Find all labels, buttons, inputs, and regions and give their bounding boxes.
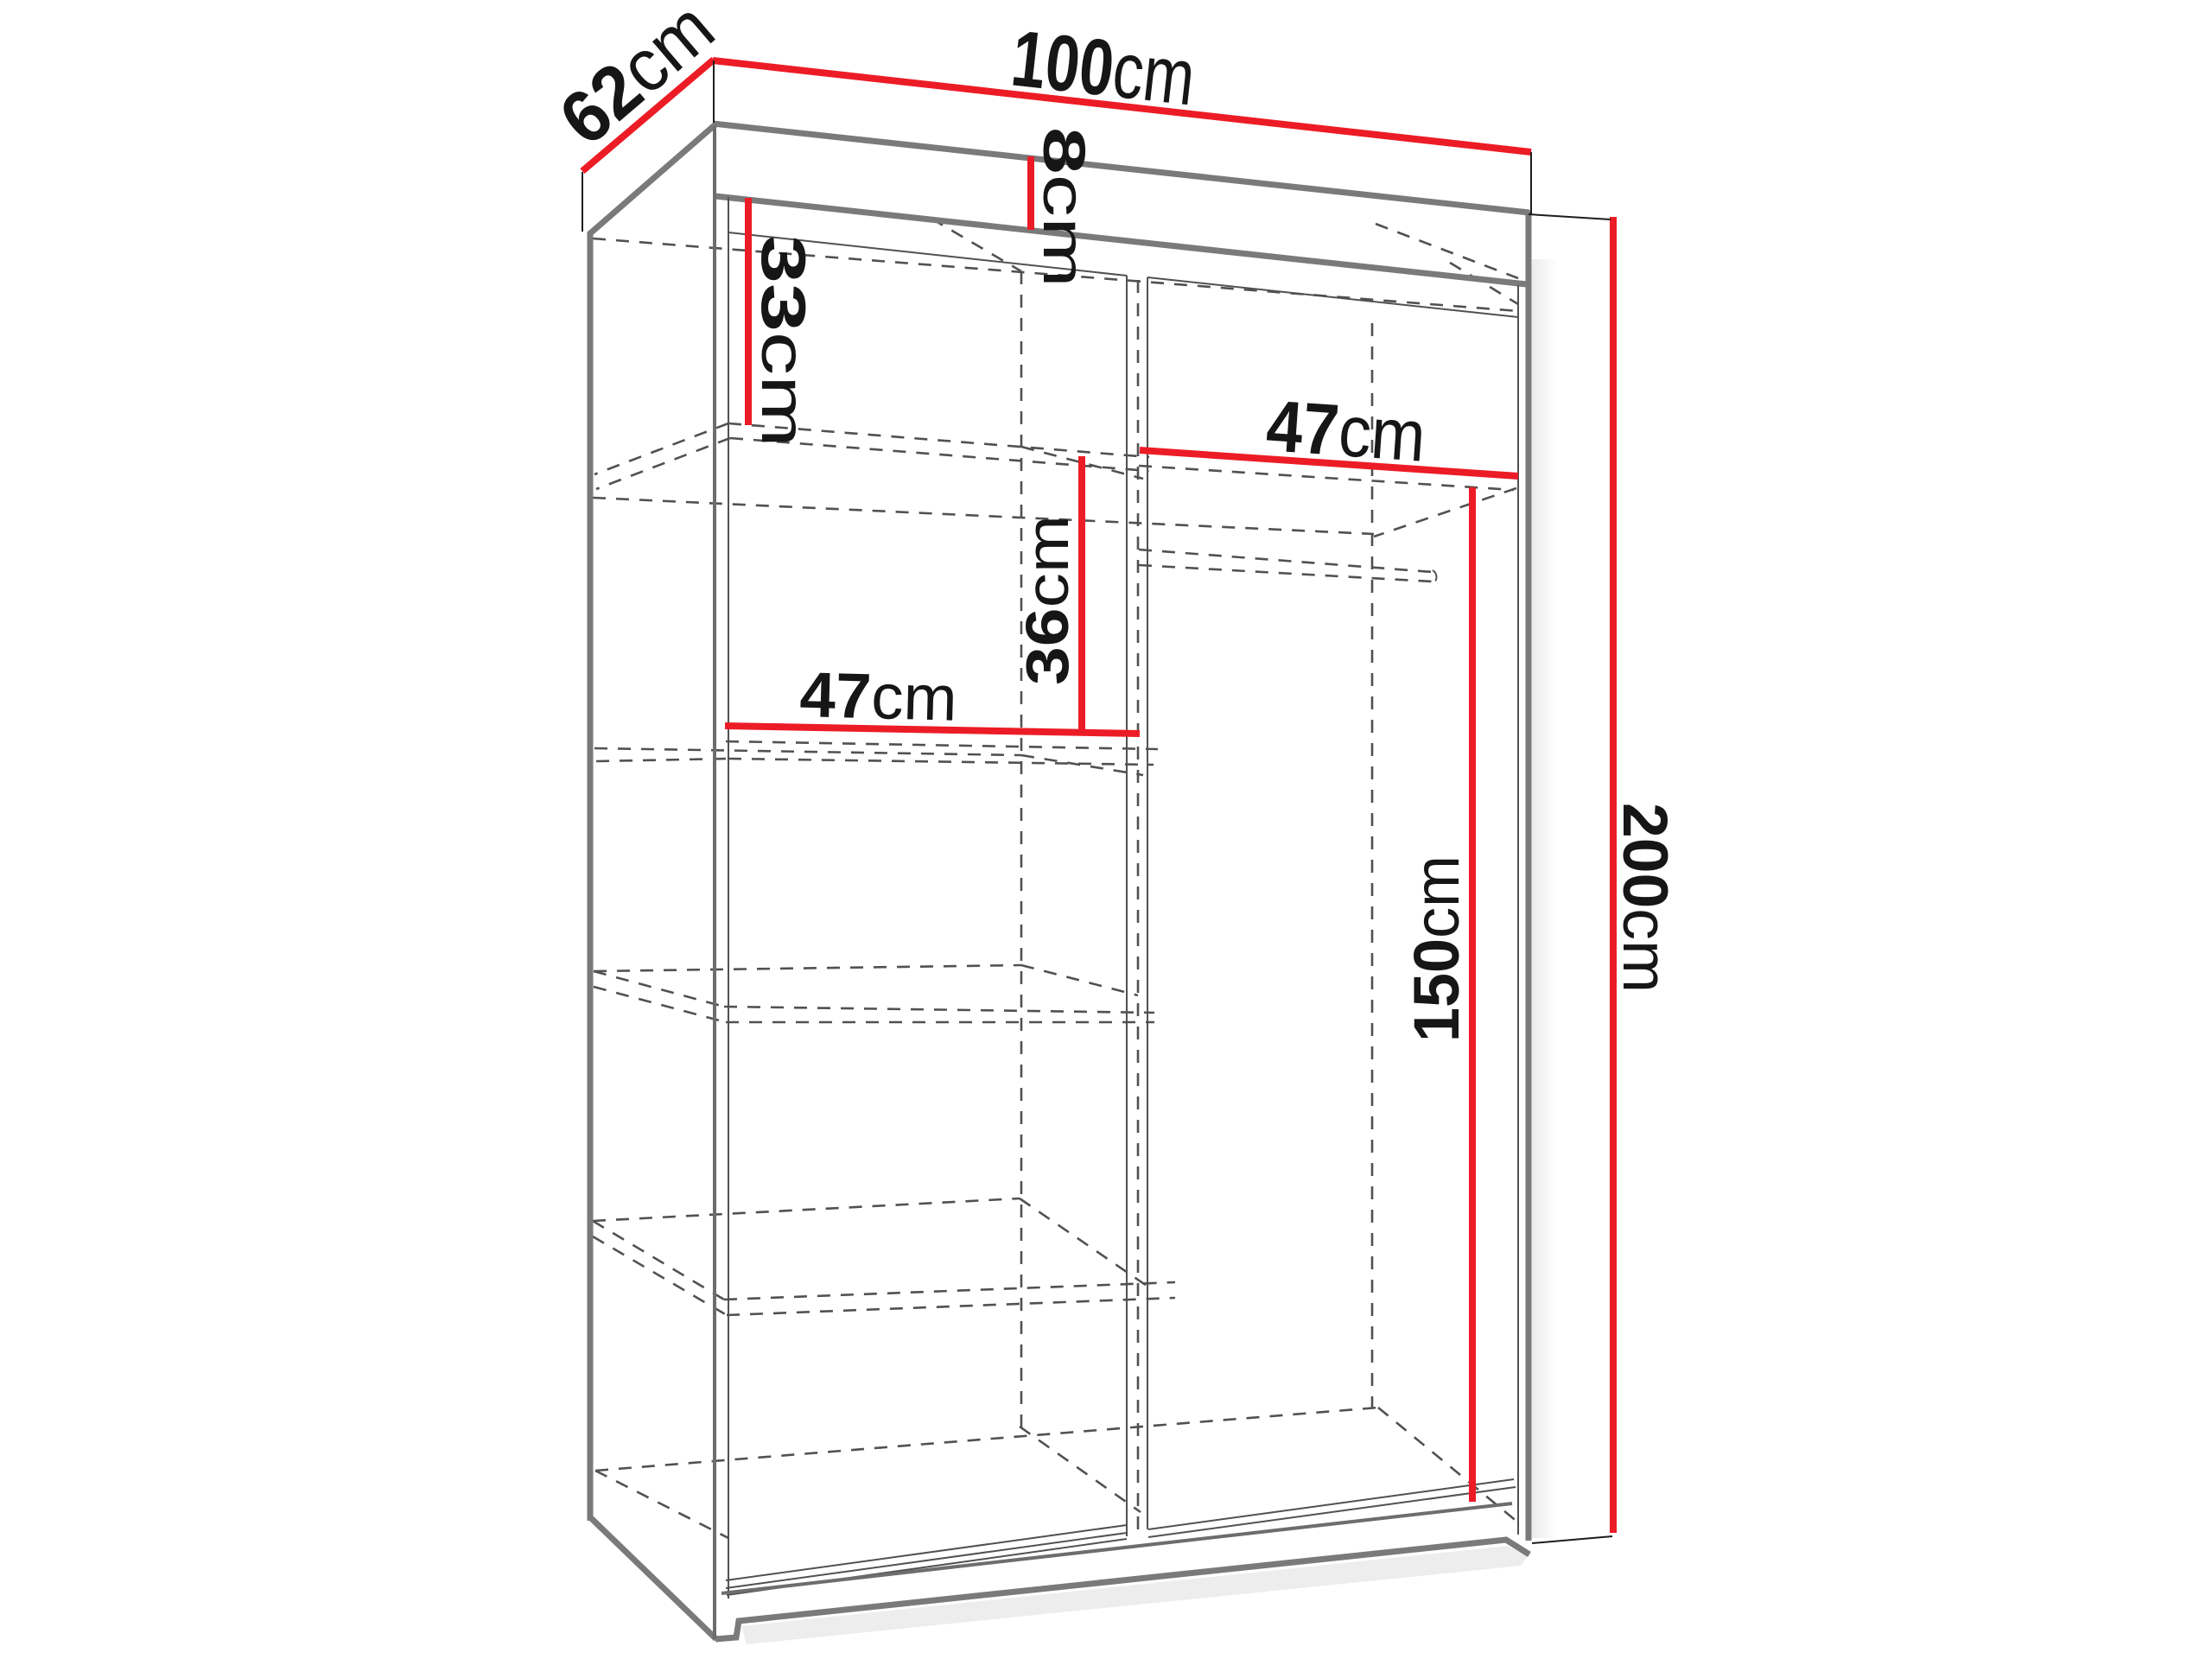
- svg-text:36cm: 36cm: [1014, 515, 1081, 685]
- svg-text:47cm: 47cm: [799, 658, 958, 734]
- svg-text:200cm: 200cm: [1610, 803, 1680, 993]
- svg-text:47cm: 47cm: [1264, 385, 1428, 477]
- svg-text:150cm: 150cm: [1401, 855, 1472, 1042]
- svg-text:8cm: 8cm: [1031, 127, 1097, 288]
- svg-text:33cm: 33cm: [748, 235, 817, 448]
